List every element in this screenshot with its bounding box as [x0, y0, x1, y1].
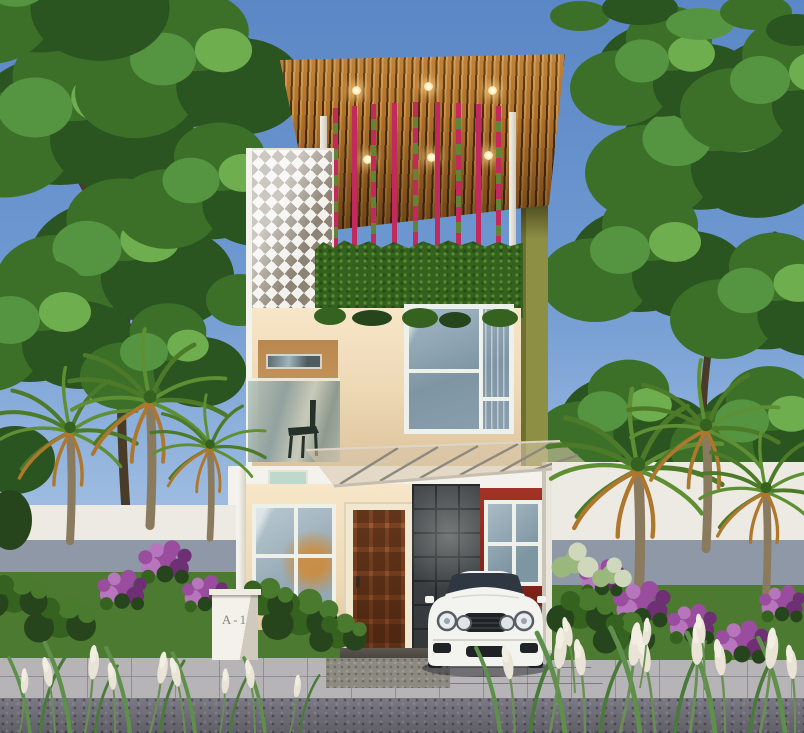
foreground-grasses — [0, 0, 804, 733]
grass-clump-right — [476, 613, 801, 733]
grass-clump-left — [9, 643, 319, 733]
architectural-render: A-1 — [0, 0, 804, 733]
